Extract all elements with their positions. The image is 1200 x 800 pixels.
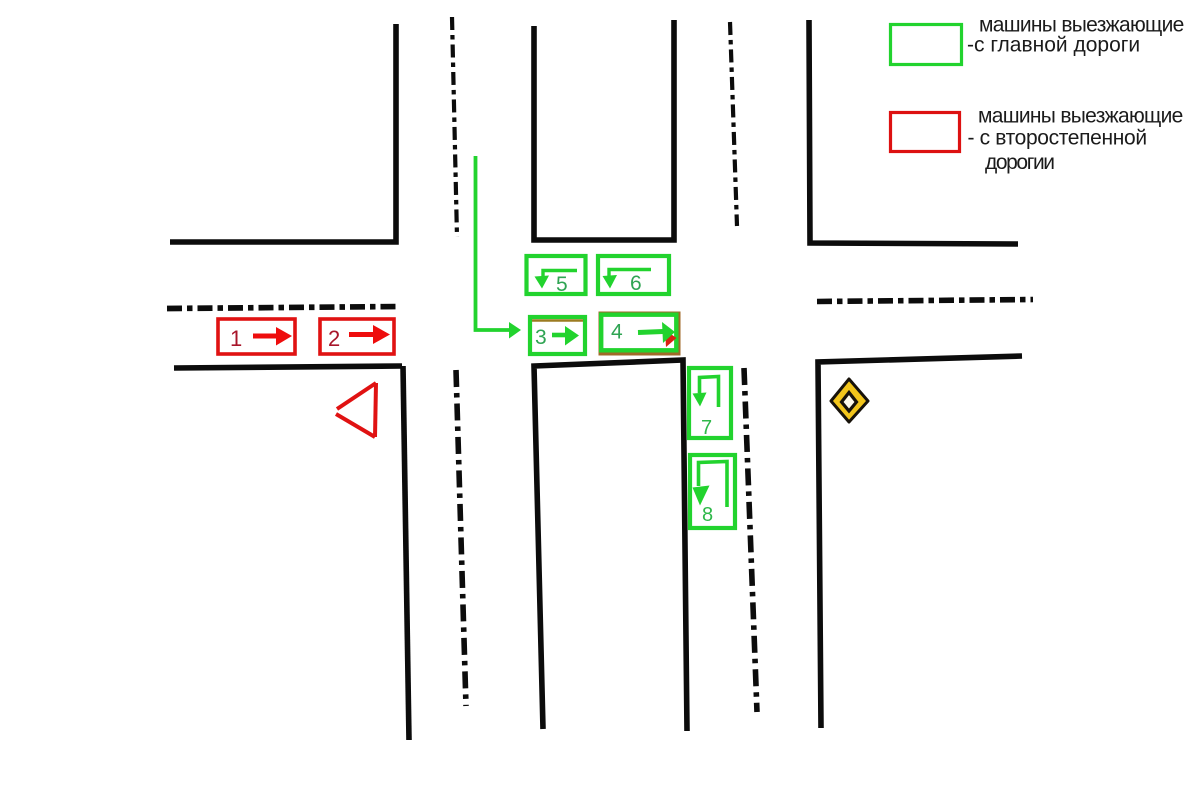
svg-text:машины выезжающие: машины выезжающие: [978, 105, 1183, 128]
svg-text:4: 4: [611, 321, 623, 344]
svg-text:2: 2: [328, 326, 340, 351]
svg-text:3: 3: [535, 326, 547, 349]
svg-text:дорогии: дорогии: [985, 151, 1054, 174]
svg-text:-с главной дороги: -с главной дороги: [967, 34, 1140, 57]
svg-text:1: 1: [230, 326, 242, 351]
svg-text:- с второстепенной: - с второстепенной: [968, 127, 1147, 150]
svg-text:6: 6: [630, 272, 642, 295]
svg-text:5: 5: [556, 273, 568, 296]
svg-text:7: 7: [701, 417, 712, 439]
svg-text:8: 8: [702, 504, 713, 526]
